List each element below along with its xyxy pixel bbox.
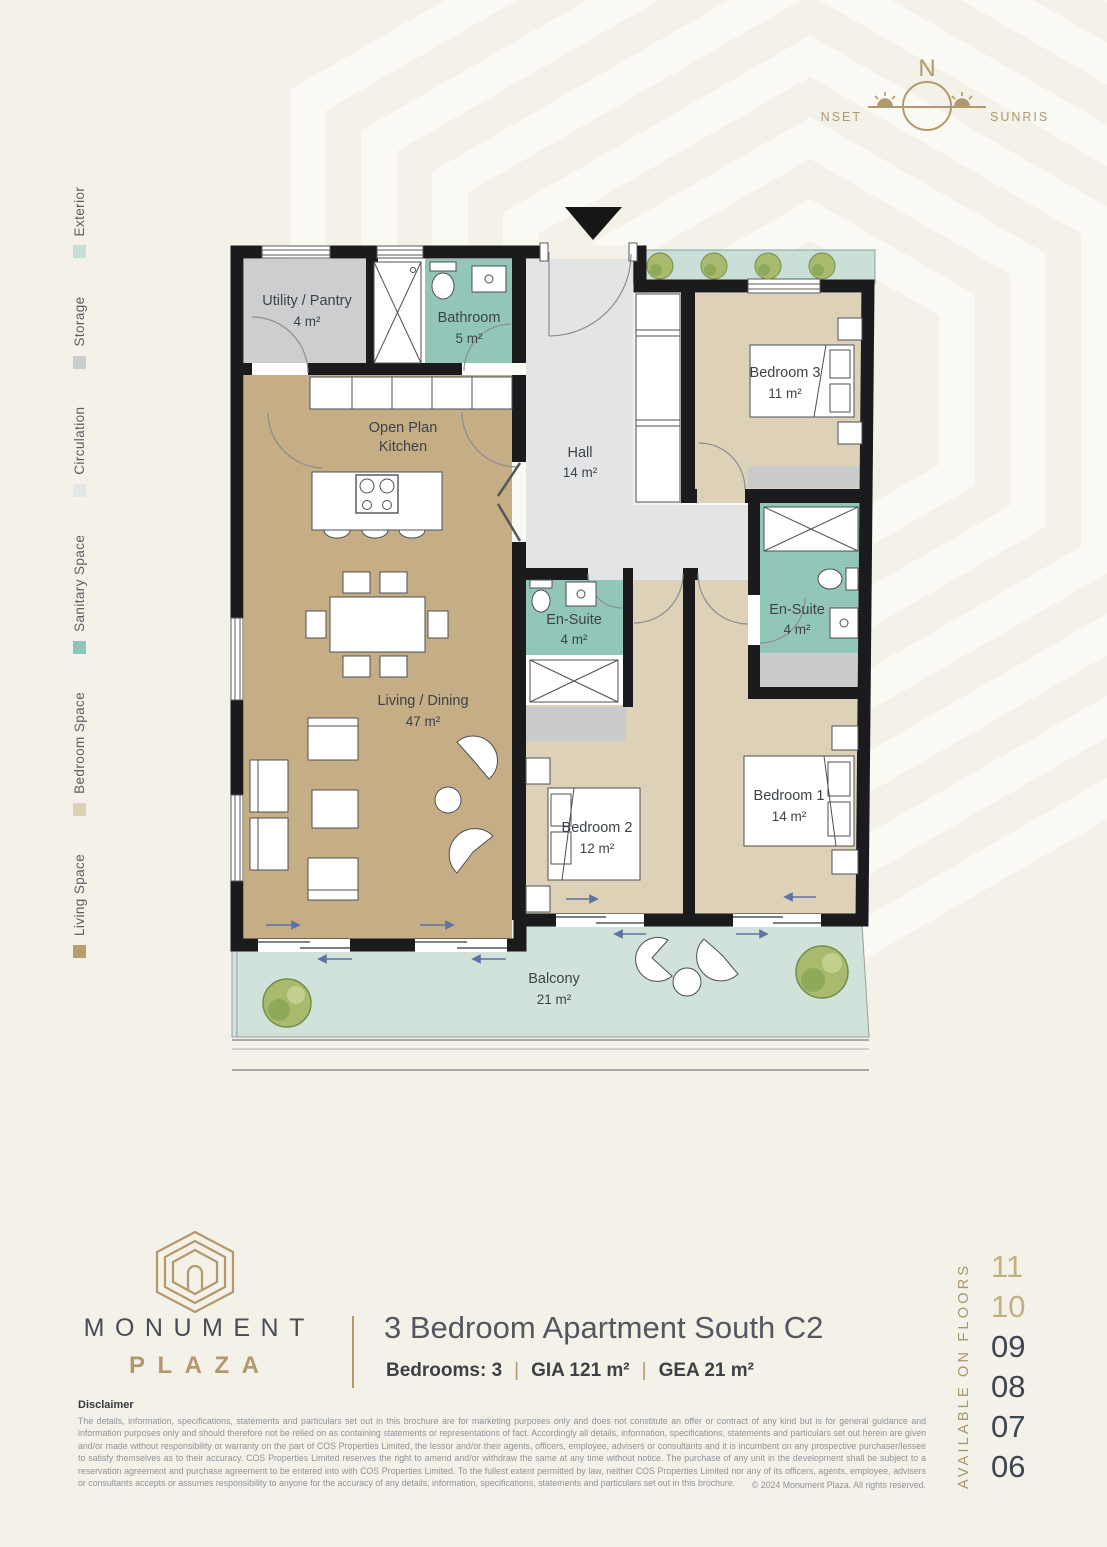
bedroom-space-swatch	[73, 803, 86, 816]
svg-text:5 m²: 5 m²	[456, 331, 484, 346]
floor-11: 11	[991, 1247, 1025, 1287]
balcony-tree-left	[263, 979, 311, 1027]
exterior-swatch	[73, 245, 86, 258]
entrance-arrow-icon	[565, 207, 622, 240]
apartment-title: 3 Bedroom Apartment South C2	[384, 1310, 823, 1346]
svg-text:4 m²: 4 m²	[784, 622, 812, 637]
room-hall-ext	[633, 505, 748, 568]
spec-gia: GIA 121 m²	[531, 1360, 630, 1381]
label-balcony: Balcony	[528, 971, 580, 987]
svg-text:14 m²: 14 m²	[772, 809, 807, 824]
spec-bedrooms: Bedrooms: 3	[386, 1360, 502, 1381]
room-utility	[244, 259, 368, 363]
legend-item-bedroom: Bedroom Space	[72, 692, 87, 816]
legend-item-living: Living Space	[72, 854, 87, 958]
svg-text:11 m²: 11 m²	[768, 386, 802, 401]
floor-08: 08	[991, 1367, 1025, 1407]
sanitary-space-swatch	[73, 641, 86, 654]
room-hall	[526, 259, 633, 568]
footer-divider	[352, 1316, 354, 1388]
svg-text:47 m²: 47 m²	[406, 714, 441, 729]
legend-item-exterior: Exterior	[72, 187, 87, 259]
legend: Living Space Bedroom Space Sanitary Spac…	[72, 187, 87, 958]
sunrise-sun-icon	[952, 92, 972, 106]
sunset-label: SUNSET	[820, 110, 862, 124]
label-bathroom: Bathroom	[438, 310, 501, 326]
floor-10: 10	[991, 1287, 1025, 1327]
floor-plan: Utility / Pantry 4 m² Bathroom 5 m² Open…	[215, 200, 895, 1085]
svg-text:12 m²: 12 m²	[580, 841, 615, 856]
sunrise-label: SUNRISE	[990, 110, 1050, 124]
label-hall: Hall	[568, 445, 593, 461]
floor-09: 09	[991, 1327, 1025, 1367]
disclaimer: Disclaimer The details, information, spe…	[78, 1399, 926, 1490]
legend-item-sanitary: Sanitary Space	[72, 535, 87, 654]
available-on-floors-label: AVAILABLE ON FLOORS	[956, 1259, 972, 1489]
sunset-sun-icon	[875, 92, 895, 106]
label-living: Living / Dining	[377, 693, 468, 709]
label-ensuite1: En-Suite	[546, 612, 602, 628]
floor-06: 06	[991, 1447, 1025, 1487]
label-kitchen: Open Plan	[369, 420, 438, 436]
brand-name: MONUMENT	[79, 1314, 321, 1343]
floor-07: 07	[991, 1407, 1025, 1447]
circulation-swatch	[73, 484, 86, 497]
svg-text:Kitchen: Kitchen	[379, 439, 427, 455]
label-bedroom2: Bedroom 2	[562, 820, 633, 836]
svg-text:4 m²: 4 m²	[294, 314, 322, 329]
label-utility: Utility / Pantry	[262, 293, 352, 309]
svg-text:4 m²: 4 m²	[561, 632, 589, 647]
brochure-page: N SUNSET SUNRISE	[0, 0, 1107, 1547]
balcony-tree-right	[796, 946, 848, 998]
copyright-notice: © 2024 Monument Plaza. All rights reserv…	[744, 1480, 926, 1490]
disclaimer-heading: Disclaimer	[78, 1399, 926, 1411]
compass-north-label: N	[918, 55, 935, 82]
legend-item-storage: Storage	[72, 296, 87, 368]
brand-logo-icon	[148, 1231, 242, 1313]
apartment-specs: Bedrooms: 3|GIA 121 m²|GEA 21 m²	[386, 1360, 754, 1382]
svg-text:21 m²: 21 m²	[537, 992, 572, 1007]
legend-item-circulation: Circulation	[72, 407, 87, 497]
storage-swatch	[73, 356, 86, 369]
floor-list: 11 10 09 08 07 06	[991, 1247, 1025, 1487]
disclaimer-body: The details, information, specifications…	[78, 1415, 926, 1490]
living-space-swatch	[73, 945, 86, 958]
compass: N SUNSET SUNRISE	[820, 40, 1050, 150]
svg-text:14 m²: 14 m²	[563, 465, 598, 480]
spec-gea: GEA 21 m²	[659, 1360, 754, 1381]
label-bedroom3: Bedroom 3	[750, 365, 821, 381]
label-ensuite2: En-Suite	[769, 602, 825, 618]
brand-subname: PLAZA	[80, 1352, 320, 1380]
label-bedroom1: Bedroom 1	[754, 788, 825, 804]
brand-wordmark: MONUMENT PLAZA	[68, 1314, 320, 1380]
